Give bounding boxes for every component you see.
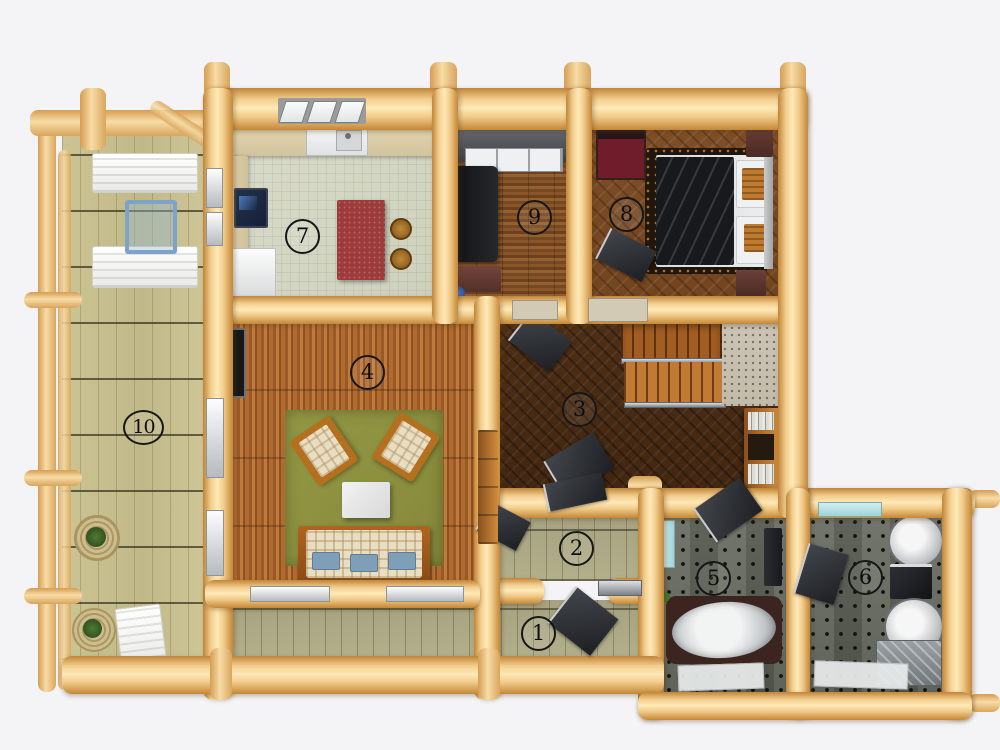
room1-threshold [598,580,642,596]
bath5-vanity [764,528,782,586]
wall-study-bedroom [566,88,592,324]
study-ottoman [457,266,501,292]
deck-plant-1 [86,527,106,547]
post-bottom-mid [478,648,500,700]
living-south-window-1 [250,586,330,602]
bookshelf-middle-shelf [748,434,774,460]
left-wall-window-kitchen-2 [206,212,223,246]
room-5-number-badge: 5 [696,561,731,596]
bath5-mat [678,663,765,692]
hall-wall-cabinet [478,430,498,544]
wall-right-upper [778,88,808,518]
living-sofa-pillow-2 [350,554,378,572]
living-south-window-2 [386,586,464,602]
bath6-basin-1 [888,514,944,568]
kitchen-faucet [345,133,351,139]
doorway-mat-bedroom [588,298,648,322]
left-wall-window-kitchen-1 [206,168,223,208]
study-sofa [452,166,498,262]
stairs-lower-flight [624,362,724,404]
room-1-number-badge: 1 [521,616,556,651]
deck-railing-outer [38,114,56,692]
left-wall-window-living-2 [206,510,224,576]
bed-duvet [656,157,734,265]
room-6-number-badge: 6 [848,560,883,595]
doorway-mat-kitchen [512,300,558,320]
deck-cross-log-2 [24,470,82,486]
deck-cross-log-3 [24,588,82,604]
living-coffee-table [342,482,390,518]
deck-lounger-top-1 [92,153,198,193]
wall-mid-horizontal [205,296,805,324]
room-9-number-badge: 9 [517,200,552,235]
room-2-number-badge: 2 [559,531,594,566]
bath6-mat [814,660,909,689]
wall-wing-right [942,488,972,720]
bath6-window [818,502,882,517]
bath6-cabinet [890,564,932,599]
kitchen-island [337,200,385,280]
bed-blanket-2 [744,224,765,252]
living-sofa-pillow-1 [312,552,340,570]
room-3-number-badge: 3 [562,392,597,427]
bookshelf-books-top [748,412,774,430]
room-8-number-badge: 8 [609,197,644,232]
log-end-wing-right-bottom [968,694,1000,712]
left-wall-window-living-1 [206,398,224,478]
bedroom-nightstand-bottom [736,270,766,297]
stairs-rail-2 [624,402,726,408]
kitchen-stool-1 [390,218,412,240]
deck-corner-post [80,88,106,150]
bed-headboard [764,153,773,269]
wall-kitchen-study [432,88,458,324]
deck-plant-2 [83,619,102,638]
room-7-number-badge: 7 [285,219,320,254]
living-sofa-pillow-3 [388,552,416,570]
kitchen-tv-screen-glare [239,196,257,210]
bed-blanket-1 [742,168,765,200]
deck-cross-log-1 [24,292,82,308]
stair-landing [722,318,778,406]
room-4-number-badge: 4 [350,355,385,390]
wall-bottom-main [62,656,664,694]
stairs-upper-flight [621,320,721,360]
deck-side-table [125,200,177,254]
kitchen-stool-2 [390,248,412,270]
bedroom-armchair-red [596,124,646,180]
post-bottom-left [210,648,232,700]
floor-plan-render: 1 2 3 4 5 6 7 8 9 10 [0,0,1000,750]
wall-wing-bottom [638,692,972,720]
bookshelf-books-bottom [748,464,774,484]
wall-bath5-bath6 [786,488,810,720]
room-10-number-badge: 10 [123,410,164,445]
deck-railing-inner [58,150,71,690]
